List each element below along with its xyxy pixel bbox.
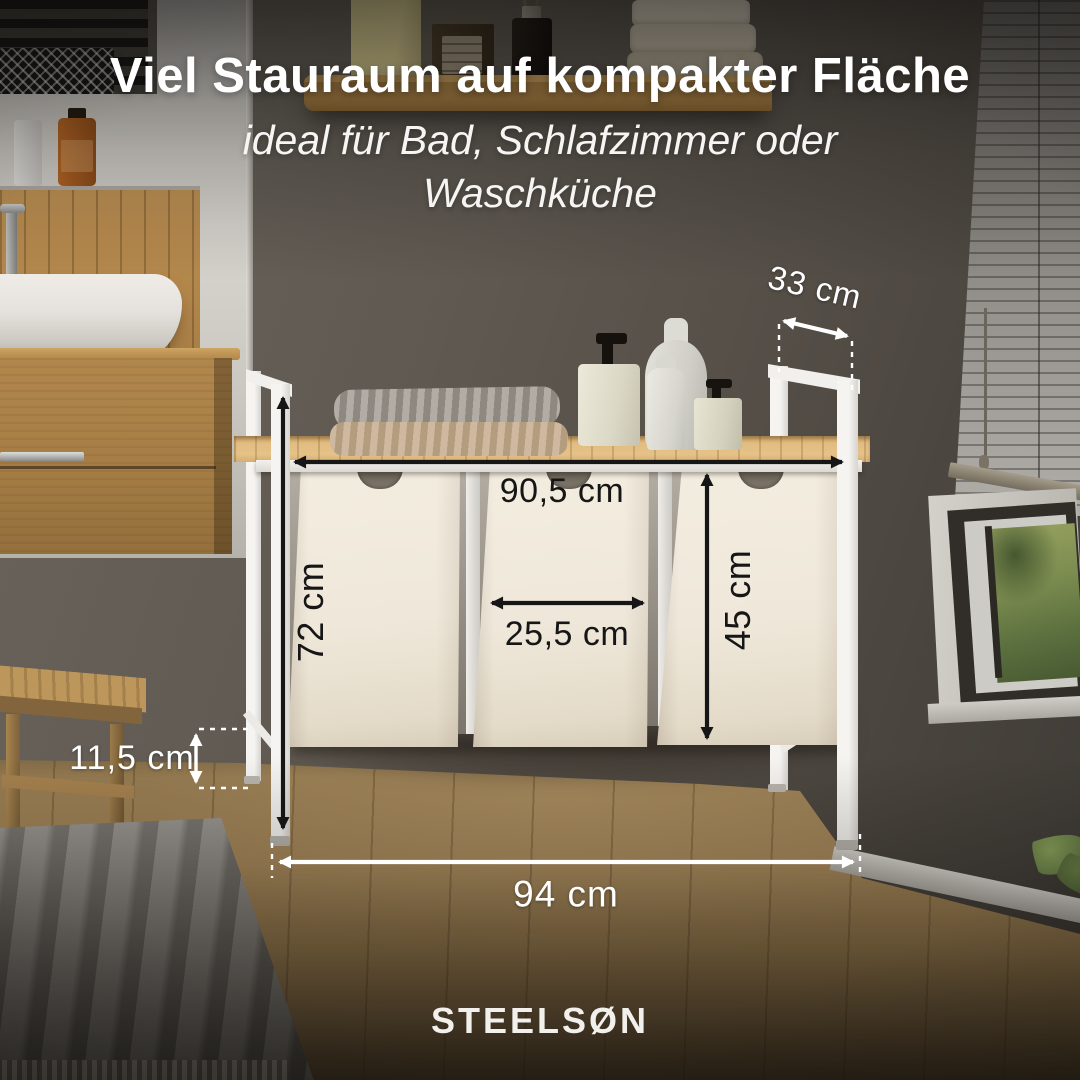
dimension-label-basket-height: 45 cm [720,550,756,651]
page-title: Viel Stauraum auf kompakter Fläche [0,48,1080,104]
brand-logo: STEELSØN [0,1000,1080,1042]
subtitle: ideal für Bad, Schlafzimmer oder Waschkü… [0,114,1080,221]
subtitle-line-1: ideal für Bad, Schlafzimmer oder [0,114,1080,167]
dimension-label-clearance: 11,5 cm [69,741,194,775]
subtitle-line-2: Waschküche [0,167,1080,220]
dimension-label-total-width: 94 cm [513,876,619,913]
dimension-label-height: 72 cm [293,562,329,663]
header: Viel Stauraum auf kompakter Fläche ideal… [0,48,1080,221]
dimension-label-basket-width: 25,5 cm [505,617,629,651]
product-infographic: 33 cm 90,5 cm 72 cm 25,5 cm 45 cm 11,5 c… [0,0,1080,1080]
dimension-label-top-width: 90,5 cm [500,474,624,508]
arrow-depth [784,321,847,336]
